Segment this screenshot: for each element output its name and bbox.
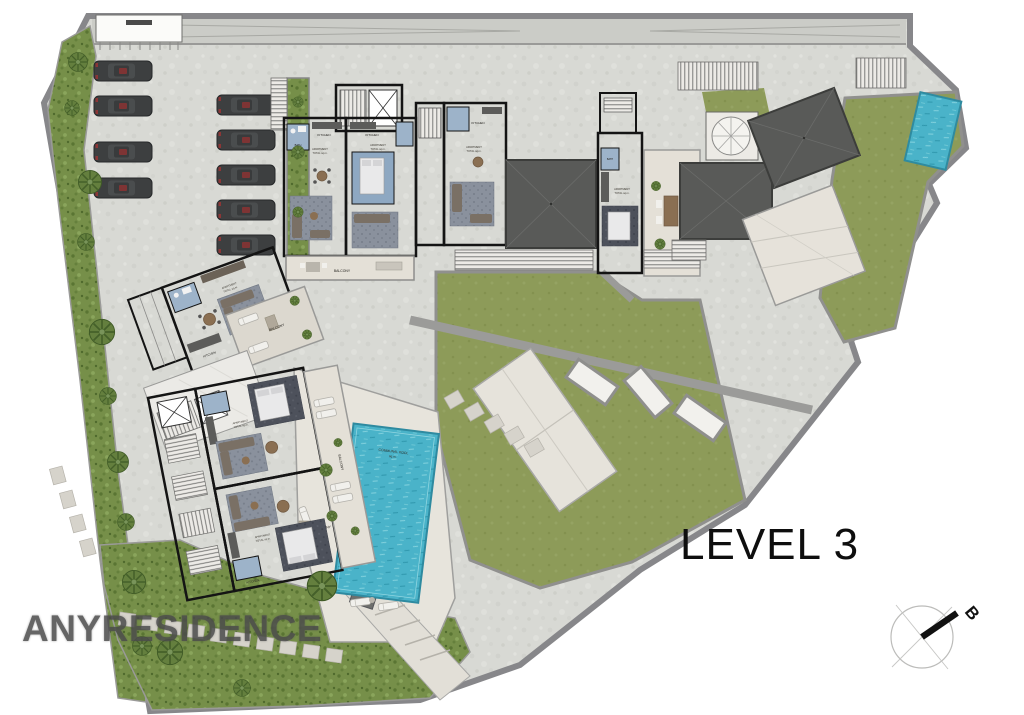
unit-area-label: TOTAL sq.m. [466,149,481,153]
stair-flight [419,108,441,138]
level-label: LEVEL 3 [680,520,859,570]
parked-car [94,178,152,198]
stair-flight [856,58,906,88]
north-compass: B [891,602,983,669]
compass-needle [922,613,957,637]
stair-flight [455,250,593,270]
roof-void [506,160,596,248]
floor-plan-page: COMMUNAL POOL sq.m. BALCONY BATH KITCHEN [0,0,1024,715]
unit-area-label: APARTMENT [466,145,482,149]
parked-car [217,235,275,255]
kitchen-label: KITCHEN [317,133,330,137]
brand-watermark: ANYRESIDENCE [22,608,322,650]
parked-car [94,142,152,162]
parked-car [94,61,152,81]
unit-area-label: APARTMENT [312,147,328,151]
balcony-terrace: BALCONY [286,256,414,280]
kitchen-label: KITCHEN [365,133,378,137]
unit-area-label: TOTAL sq.m. [614,191,629,195]
stepping-stones-west [49,466,96,557]
compass-letter: B [961,602,983,624]
unit-area-label: TOTAL sq.m. [370,147,385,151]
parked-car [217,165,275,185]
balcony-label: BALCONY [334,269,351,273]
stair-flight [672,240,706,260]
stair-flight [678,62,758,90]
unit-area-label: APARTMENT [370,143,386,147]
parked-car [217,130,275,150]
unit-area-label: APARTMENT [614,187,630,191]
parked-car [217,95,275,115]
kitchen-label: KITCHEN [471,121,484,125]
parked-car [217,200,275,220]
parked-car [94,96,152,116]
driveway-ramp [92,19,906,44]
bath-label: BATH [607,158,613,161]
unit-area-label: TOTAL sq.m. [312,151,327,155]
